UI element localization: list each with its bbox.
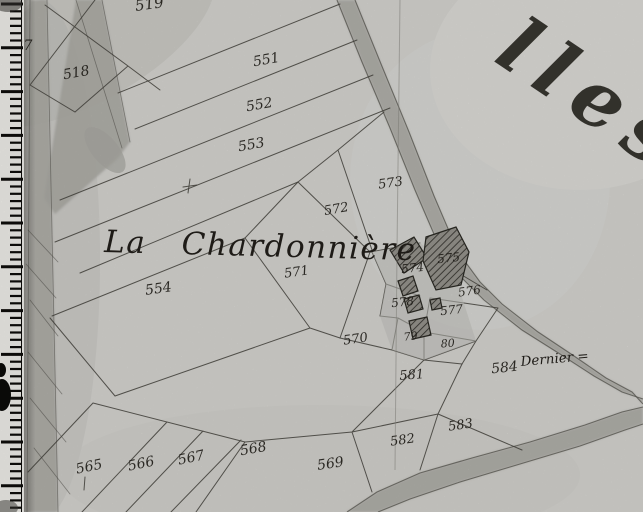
paper-grain	[0, 0, 643, 512]
map-canvas: lles La Chardonnière Dernier = 519'75185…	[0, 0, 643, 512]
cadastral-map-scan: lles La Chardonnière Dernier = 519'75185…	[0, 0, 643, 512]
